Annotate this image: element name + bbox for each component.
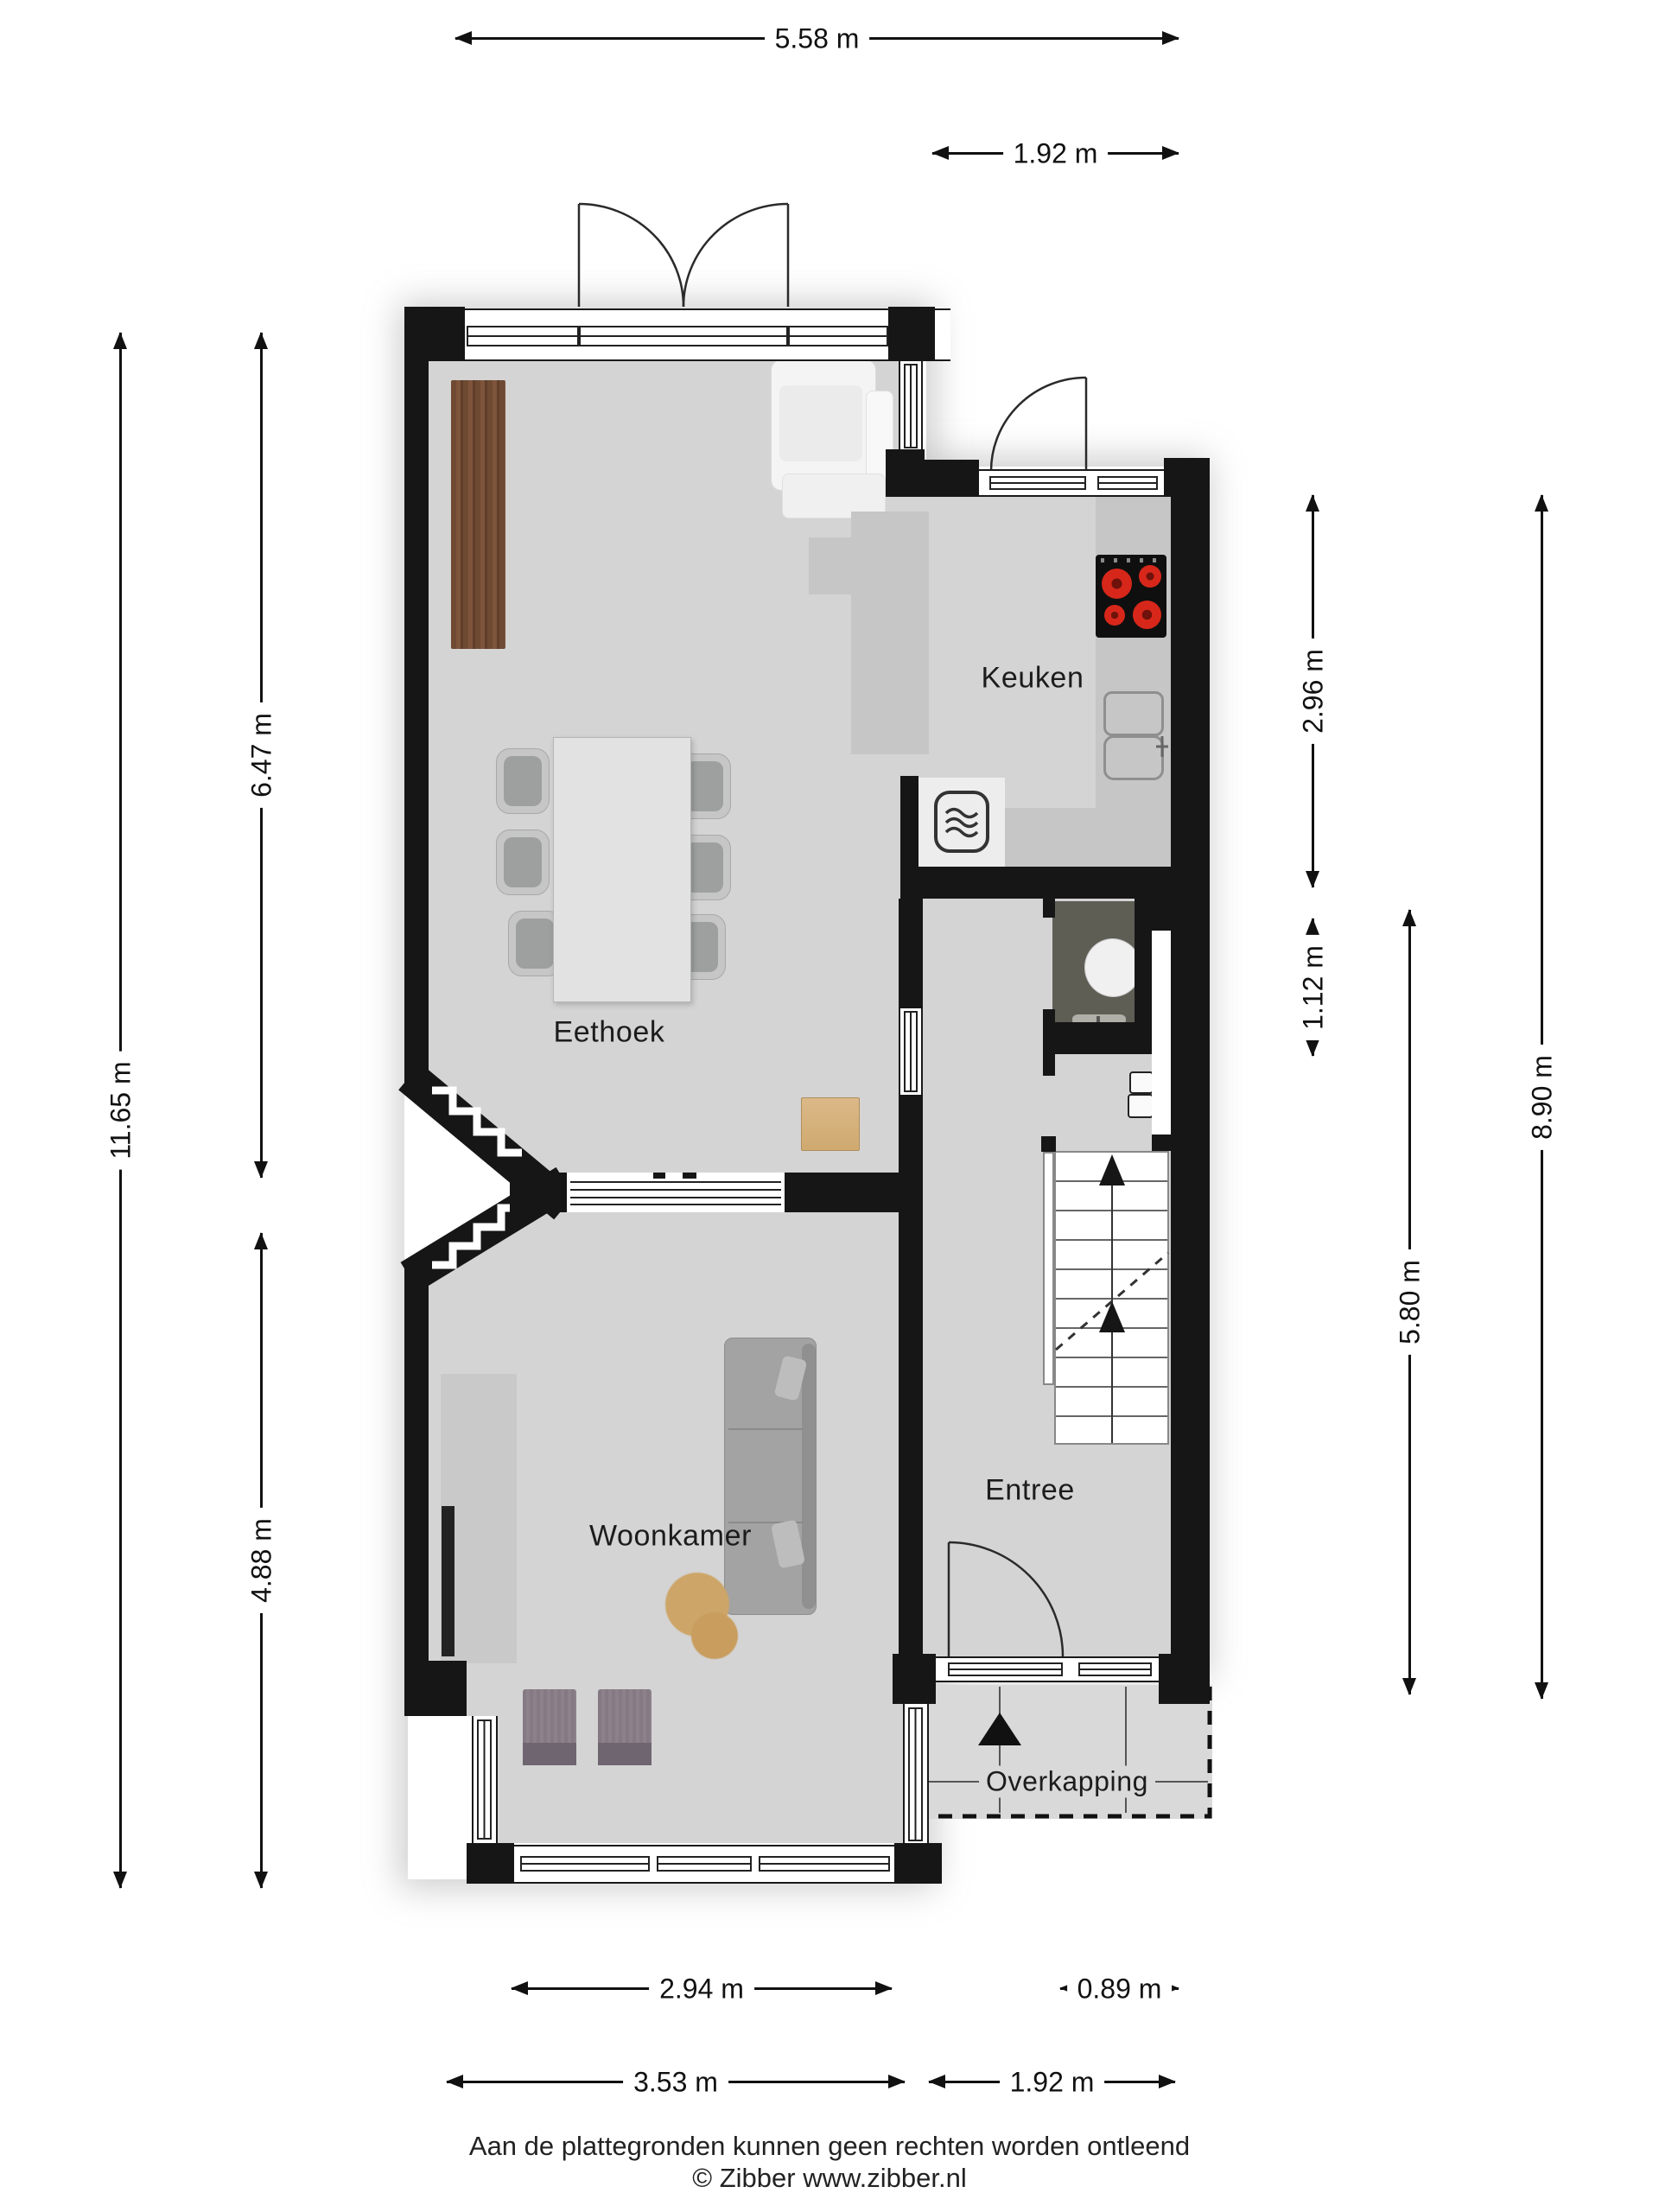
dimension-label: 5.80 m	[1395, 1249, 1427, 1355]
sofa-pillow	[771, 1519, 805, 1568]
dimension-label: 8.90 m	[1527, 1045, 1559, 1150]
dimension-top-kitchen: 1.92 m	[932, 152, 1179, 155]
room-label-keuken: Keuken	[982, 662, 1084, 696]
burner-icon	[1102, 569, 1132, 599]
sideboard	[451, 380, 505, 649]
tv-icon	[442, 1506, 454, 1656]
dimension-label: 5.58 m	[765, 23, 870, 55]
meter-box	[1128, 1094, 1154, 1118]
arrow-icon	[1306, 1039, 1319, 1057]
bay-window-right	[908, 1707, 923, 1841]
footstool	[598, 1689, 652, 1765]
door-threshold-french	[579, 326, 788, 346]
arrow-icon	[454, 31, 472, 45]
footstool-edge	[598, 1743, 652, 1765]
dimension-label: 3.53 m	[623, 2067, 728, 2099]
burner-icon	[1139, 565, 1161, 588]
stove	[1096, 555, 1166, 638]
window-kitchen-top	[1097, 476, 1158, 490]
arrow-icon	[1402, 1678, 1416, 1695]
kitchen-counter-bottom	[1002, 808, 1172, 867]
wall-left-upper	[404, 361, 429, 1090]
arrow-icon	[875, 1981, 893, 1995]
sliding-door-tick	[683, 1173, 696, 1179]
dimension-label: 2.94 m	[649, 1974, 754, 2005]
dimension-left-woonkamer: 4.88 m	[260, 1233, 263, 1888]
wall-right	[1171, 497, 1210, 1656]
window-divider	[904, 1011, 918, 1092]
bay-front-window	[657, 1856, 752, 1872]
rug	[665, 1573, 747, 1659]
wall-filler	[1152, 899, 1171, 931]
arrow-icon	[888, 2075, 906, 2088]
sliding-door-glazing	[570, 1189, 781, 1191]
wall-block	[886, 449, 925, 497]
wall-kitchen-bottom	[900, 867, 1210, 899]
door-swing-arc	[579, 204, 683, 307]
door-swing-arc	[991, 378, 1086, 471]
dimension-label: 11.65 m	[105, 1051, 137, 1169]
arrow-icon	[1162, 31, 1179, 45]
room-label-entree: Entree	[985, 1474, 1075, 1508]
shaft-recess	[1152, 931, 1171, 1135]
wall-divider-upper	[899, 899, 923, 1008]
dimension-label: 2.96 m	[1298, 639, 1330, 744]
arrow-icon	[1535, 494, 1548, 512]
kitchen-counter-right	[1096, 497, 1171, 855]
ensuite-sliding-doors	[567, 1173, 785, 1212]
arrow-icon	[1306, 494, 1319, 512]
arrow-icon	[1535, 1682, 1548, 1700]
door-threshold-front	[948, 1662, 1063, 1676]
bay-front-window	[520, 1856, 650, 1872]
dining-table	[553, 737, 691, 1002]
wall-toilet-bottom	[1054, 1022, 1135, 1054]
sliding-door-glazing	[570, 1181, 781, 1183]
sliding-door-tick	[653, 1173, 665, 1179]
stove-knobs	[1101, 558, 1161, 563]
wall-corner	[893, 1654, 936, 1704]
arrow-icon	[446, 2075, 463, 2088]
dimension-right-kitchen: 2.96 m	[1312, 495, 1314, 887]
dimension-bottom-door: 0.89 m	[1060, 1987, 1179, 1990]
wall-ensuite-left	[510, 1173, 567, 1212]
footstool	[523, 1689, 576, 1765]
stairs	[1054, 1151, 1169, 1445]
arrow-icon	[254, 1872, 268, 1889]
wall-filler	[1152, 1135, 1171, 1151]
arrow-icon	[1162, 146, 1179, 160]
wall-corner	[404, 307, 465, 361]
arrow-icon	[928, 2075, 945, 2088]
meter-box	[1129, 1071, 1154, 1094]
wall-corner	[404, 1661, 467, 1716]
floorplan: Eethoek Keuken Woonkamer Entree Overkapp…	[0, 0, 1659, 2212]
dimension-bottom-entree: 1.92 m	[929, 2081, 1175, 2083]
kitchen-counter-left	[851, 512, 929, 754]
wall-toilet-left	[1043, 1009, 1055, 1076]
wall-corner	[894, 1843, 942, 1884]
burner-icon	[1133, 601, 1161, 629]
dimension-bottom-bay: 2.94 m	[512, 1987, 892, 1990]
floor-overkapping	[921, 1685, 1212, 1819]
dimension-left-eethoek: 6.47 m	[260, 333, 263, 1178]
rug-part	[691, 1612, 738, 1659]
stair-stringer	[1043, 1152, 1054, 1385]
wall-corner	[467, 1843, 514, 1884]
arrow-icon	[113, 1872, 127, 1889]
dimension-label: 1.12 m	[1298, 935, 1330, 1040]
dimension-right-toilet: 1.12 m	[1312, 918, 1314, 1056]
arrow-icon	[113, 332, 127, 349]
dining-chair	[496, 829, 550, 895]
wall-left-lower	[404, 1263, 429, 1661]
bay-window-left	[477, 1719, 492, 1840]
sofa-seam	[728, 1428, 803, 1430]
wall-corner	[1159, 1654, 1210, 1704]
room-label-eethoek: Eethoek	[554, 1016, 665, 1050]
dimension-top-total: 5.58 m	[455, 37, 1179, 40]
dining-chair	[496, 748, 550, 814]
room-label-woonkamer: Woonkamer	[589, 1520, 752, 1554]
dimension-right-entree: 5.80 m	[1408, 910, 1411, 1694]
kitchen-counter-stub	[809, 537, 854, 594]
arrow-icon	[1159, 2075, 1176, 2088]
arrow-icon	[254, 1161, 268, 1179]
wall-toilet-left	[1043, 899, 1055, 918]
arrow-icon	[1306, 871, 1319, 888]
window-entree-front	[1078, 1662, 1152, 1676]
arrow-icon	[254, 1232, 268, 1249]
door-threshold-kitchen	[989, 476, 1086, 490]
arrow-icon	[1402, 909, 1416, 926]
wall-stair-stub	[1041, 1136, 1056, 1152]
room-label-overkapping: Overkapping	[979, 1766, 1155, 1798]
wall-corner	[1164, 458, 1210, 497]
armchair-seat	[779, 385, 862, 461]
window-top-left	[467, 326, 579, 346]
bay-front-window	[759, 1856, 890, 1872]
wall-corner	[888, 307, 935, 361]
window-top-right	[788, 326, 888, 346]
sliding-door-glazing	[570, 1204, 781, 1205]
arrow-icon	[254, 332, 268, 349]
sliding-door-glazing	[570, 1197, 781, 1198]
footer-copyright: © Zibber www.zibber.nl	[0, 2163, 1659, 2194]
dimension-bottom-woonkamer: 3.53 m	[447, 2081, 905, 2083]
dimension-label: 1.92 m	[1000, 2067, 1105, 2099]
dimension-label: 0.89 m	[1067, 1974, 1173, 2005]
sink-basin	[1103, 735, 1164, 780]
wall-kitchen-stub	[900, 776, 918, 867]
dimension-label: 4.88 m	[246, 1508, 278, 1613]
door-swing-arc	[683, 204, 788, 307]
dimension-left-total: 11.65 m	[119, 333, 122, 1888]
burner-icon	[1104, 605, 1125, 626]
wall-toilet-right	[1135, 899, 1152, 1054]
wall-kitchen-top-stub	[925, 460, 979, 497]
footer-disclaimer: Aan de plattegronden kunnen geen rechten…	[0, 2131, 1659, 2162]
side-table	[801, 1097, 860, 1151]
wall-ensuite-right	[785, 1173, 899, 1212]
window-eethoek-right	[904, 364, 918, 448]
arrow-icon	[1306, 918, 1319, 935]
sink-basin	[1103, 691, 1164, 736]
dimension-label: 1.92 m	[1003, 138, 1109, 170]
arrow-icon	[511, 1981, 528, 1995]
dimension-label: 6.47 m	[246, 702, 278, 808]
microwave-icon	[933, 790, 990, 854]
dimension-right-total: 8.90 m	[1541, 495, 1543, 1699]
footstool-edge	[523, 1743, 576, 1765]
wall-divider-lower	[899, 1095, 923, 1654]
arrow-icon	[931, 146, 949, 160]
sofa-backrest	[802, 1344, 816, 1609]
